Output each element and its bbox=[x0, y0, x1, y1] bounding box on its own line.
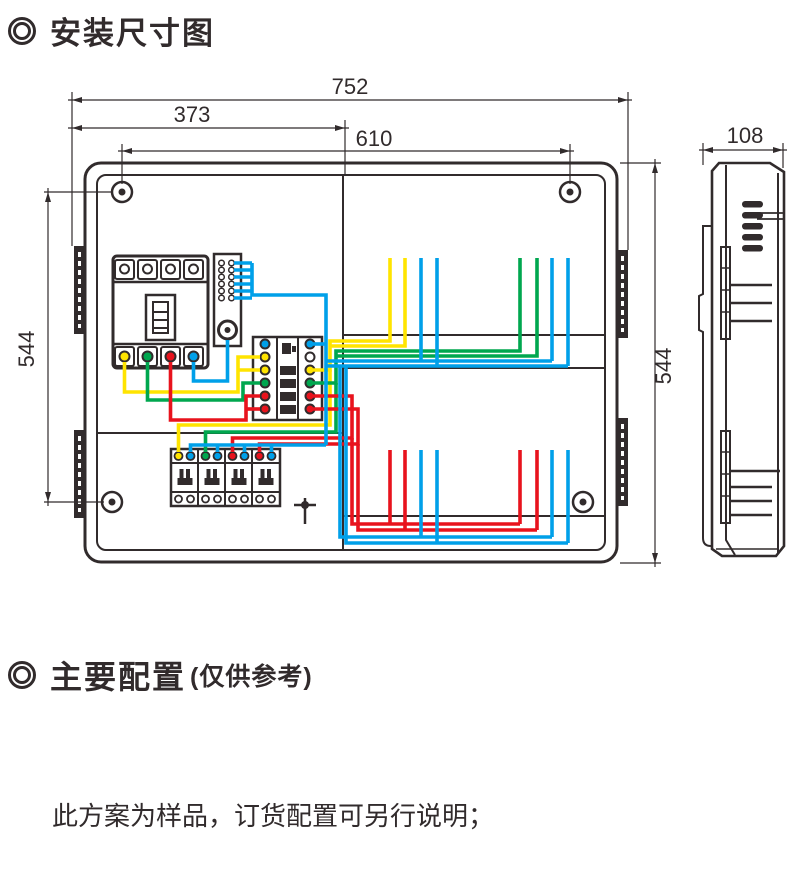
dim-label-752: 752 bbox=[332, 74, 369, 99]
wiring bbox=[125, 258, 569, 543]
side-view bbox=[699, 163, 784, 556]
premeter-block-glyphs bbox=[280, 343, 296, 414]
terminal-strip bbox=[214, 254, 241, 346]
double-circle-bullet-icon bbox=[8, 661, 36, 689]
side-rail-bracket-top bbox=[721, 247, 772, 339]
installation-diagram: 752 373 610 bbox=[0, 0, 800, 640]
postmeter-rcbo-row bbox=[171, 449, 280, 506]
main-breaker-bottom-terminals bbox=[115, 347, 203, 366]
front-view bbox=[74, 163, 628, 562]
dim-label-544-right: 544 bbox=[651, 348, 676, 385]
terminal-strip-holes bbox=[219, 260, 235, 301]
premeter-breaker-block bbox=[253, 337, 322, 420]
mounting-hole bbox=[560, 182, 580, 202]
config-body: 此方案为样品，订货配置可另行说明； 总开关可装NM1-225S/4300，表前可… bbox=[52, 716, 792, 895]
config-heading-note: (仅供参考) bbox=[190, 657, 313, 693]
side-door-outline bbox=[712, 163, 784, 556]
dim-label-610: 610 bbox=[356, 126, 393, 151]
config-section-header: 主要配置 (仅供参考) bbox=[8, 652, 313, 698]
earth-symbol-icon bbox=[294, 498, 316, 524]
config-line: 此方案为样品，订货配置可另行说明； bbox=[52, 796, 792, 836]
mounting-hole bbox=[112, 182, 132, 202]
mounting-hole bbox=[102, 492, 122, 512]
premeter-left-terminals bbox=[261, 340, 270, 414]
main-breaker-toggle bbox=[146, 295, 175, 340]
main-breaker bbox=[113, 256, 208, 368]
dim-label-373: 373 bbox=[174, 102, 211, 127]
wire-segment bbox=[358, 444, 537, 530]
mounting-hole bbox=[573, 492, 593, 512]
dim-373: 373 bbox=[68, 102, 349, 176]
dimensions: 752 373 610 bbox=[14, 74, 787, 567]
wire-segment bbox=[330, 258, 405, 346]
premeter-right-terminals bbox=[306, 340, 315, 414]
vent-slots bbox=[742, 201, 763, 252]
page: 安装尺寸图 bbox=[0, 0, 800, 895]
side-back-plate bbox=[699, 226, 712, 546]
main-breaker-top-terminals bbox=[115, 260, 203, 279]
config-heading: 主要配置 bbox=[50, 652, 186, 698]
dim-label-108: 108 bbox=[727, 123, 764, 148]
dim-label-544-left: 544 bbox=[14, 331, 39, 368]
dim-108: 108 bbox=[699, 123, 787, 168]
side-rail-bracket-bottom bbox=[721, 431, 780, 523]
